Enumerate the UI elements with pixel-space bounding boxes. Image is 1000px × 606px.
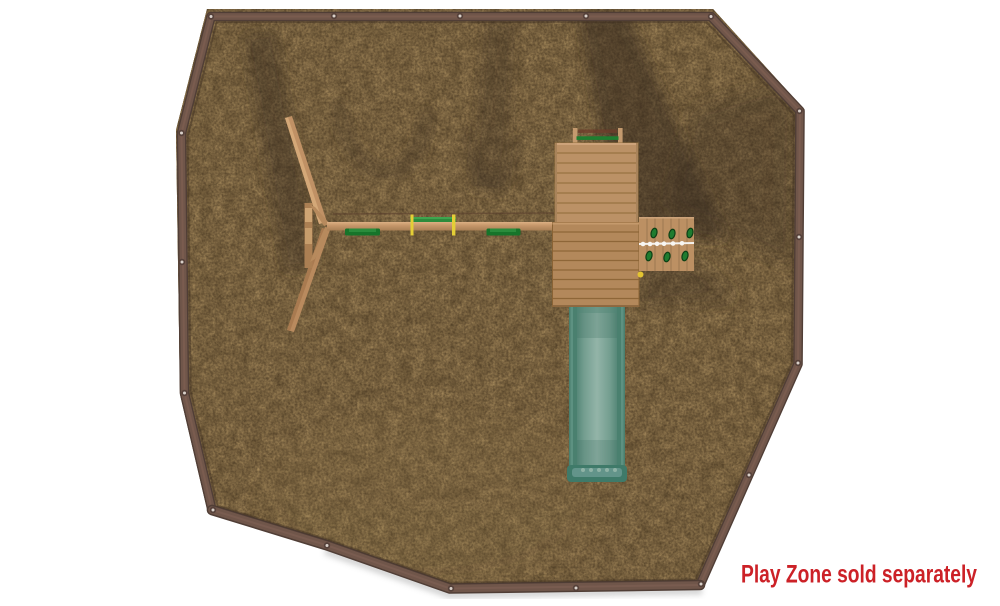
svg-text:Play Zone sold separately: Play Zone sold separately: [741, 561, 977, 589]
